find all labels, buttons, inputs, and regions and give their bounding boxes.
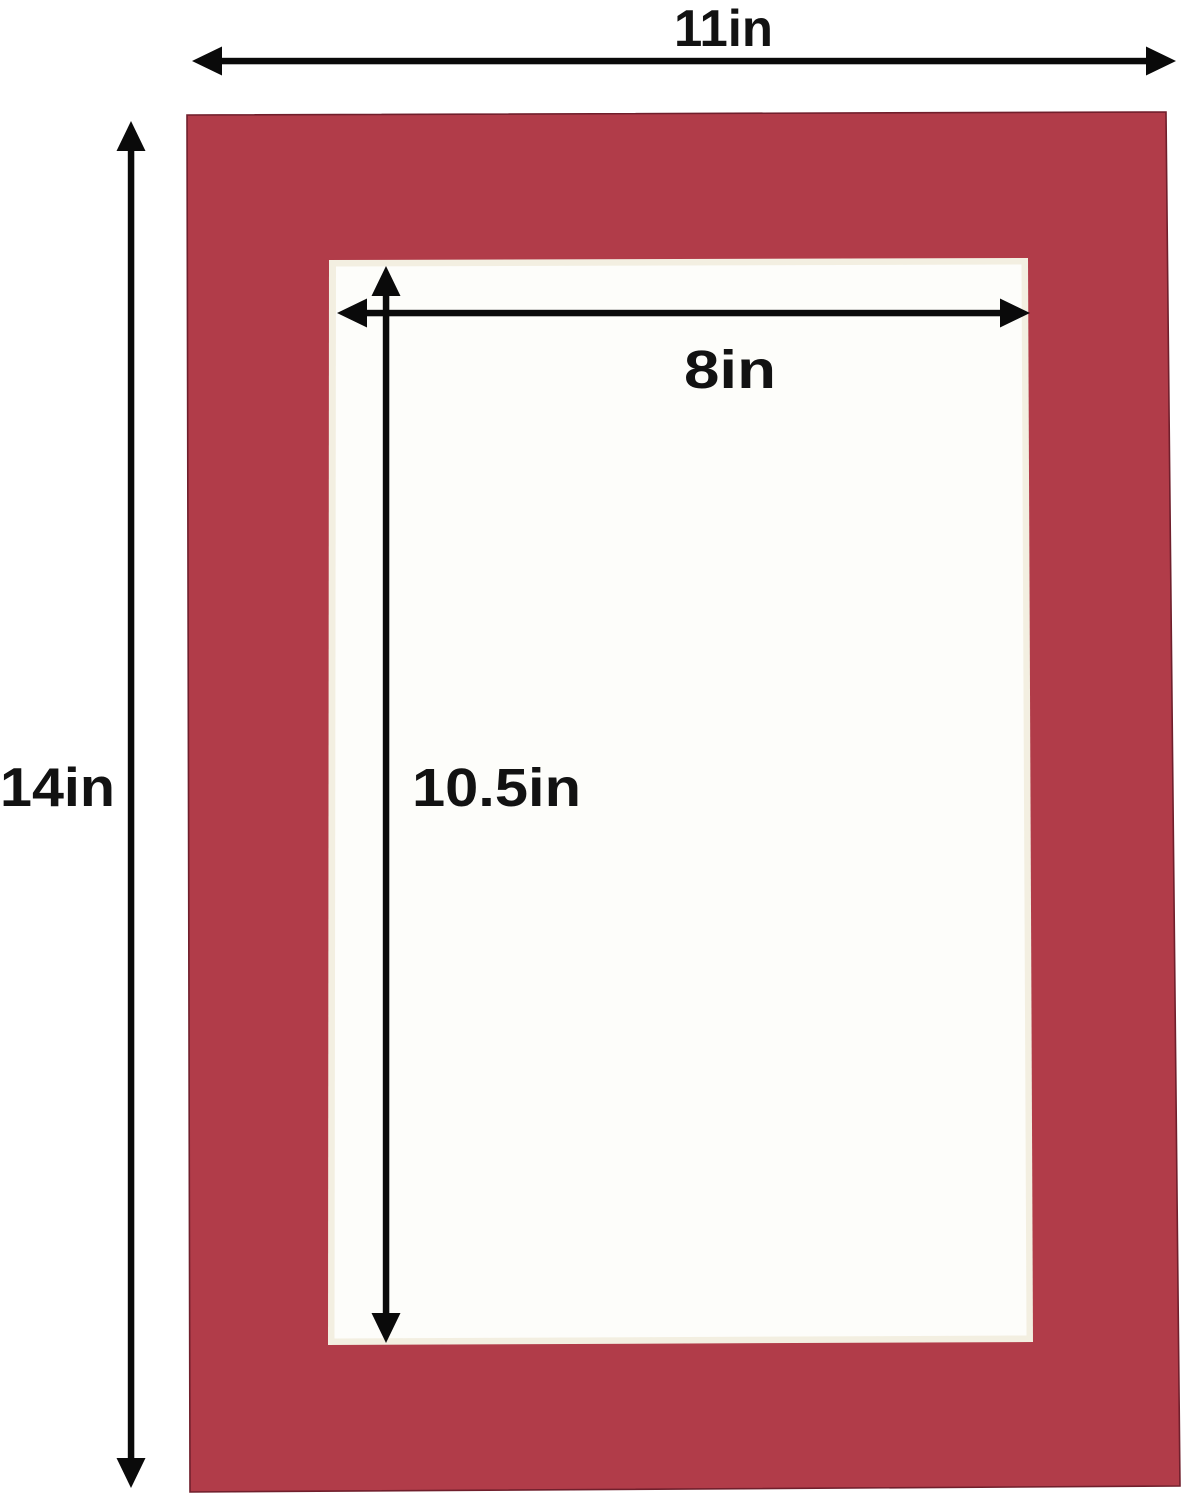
svg-text:11in: 11in: [674, 0, 773, 58]
svg-text:8in: 8in: [684, 340, 776, 400]
svg-text:10.5in: 10.5in: [412, 758, 581, 818]
svg-text:14in: 14in: [0, 756, 115, 818]
